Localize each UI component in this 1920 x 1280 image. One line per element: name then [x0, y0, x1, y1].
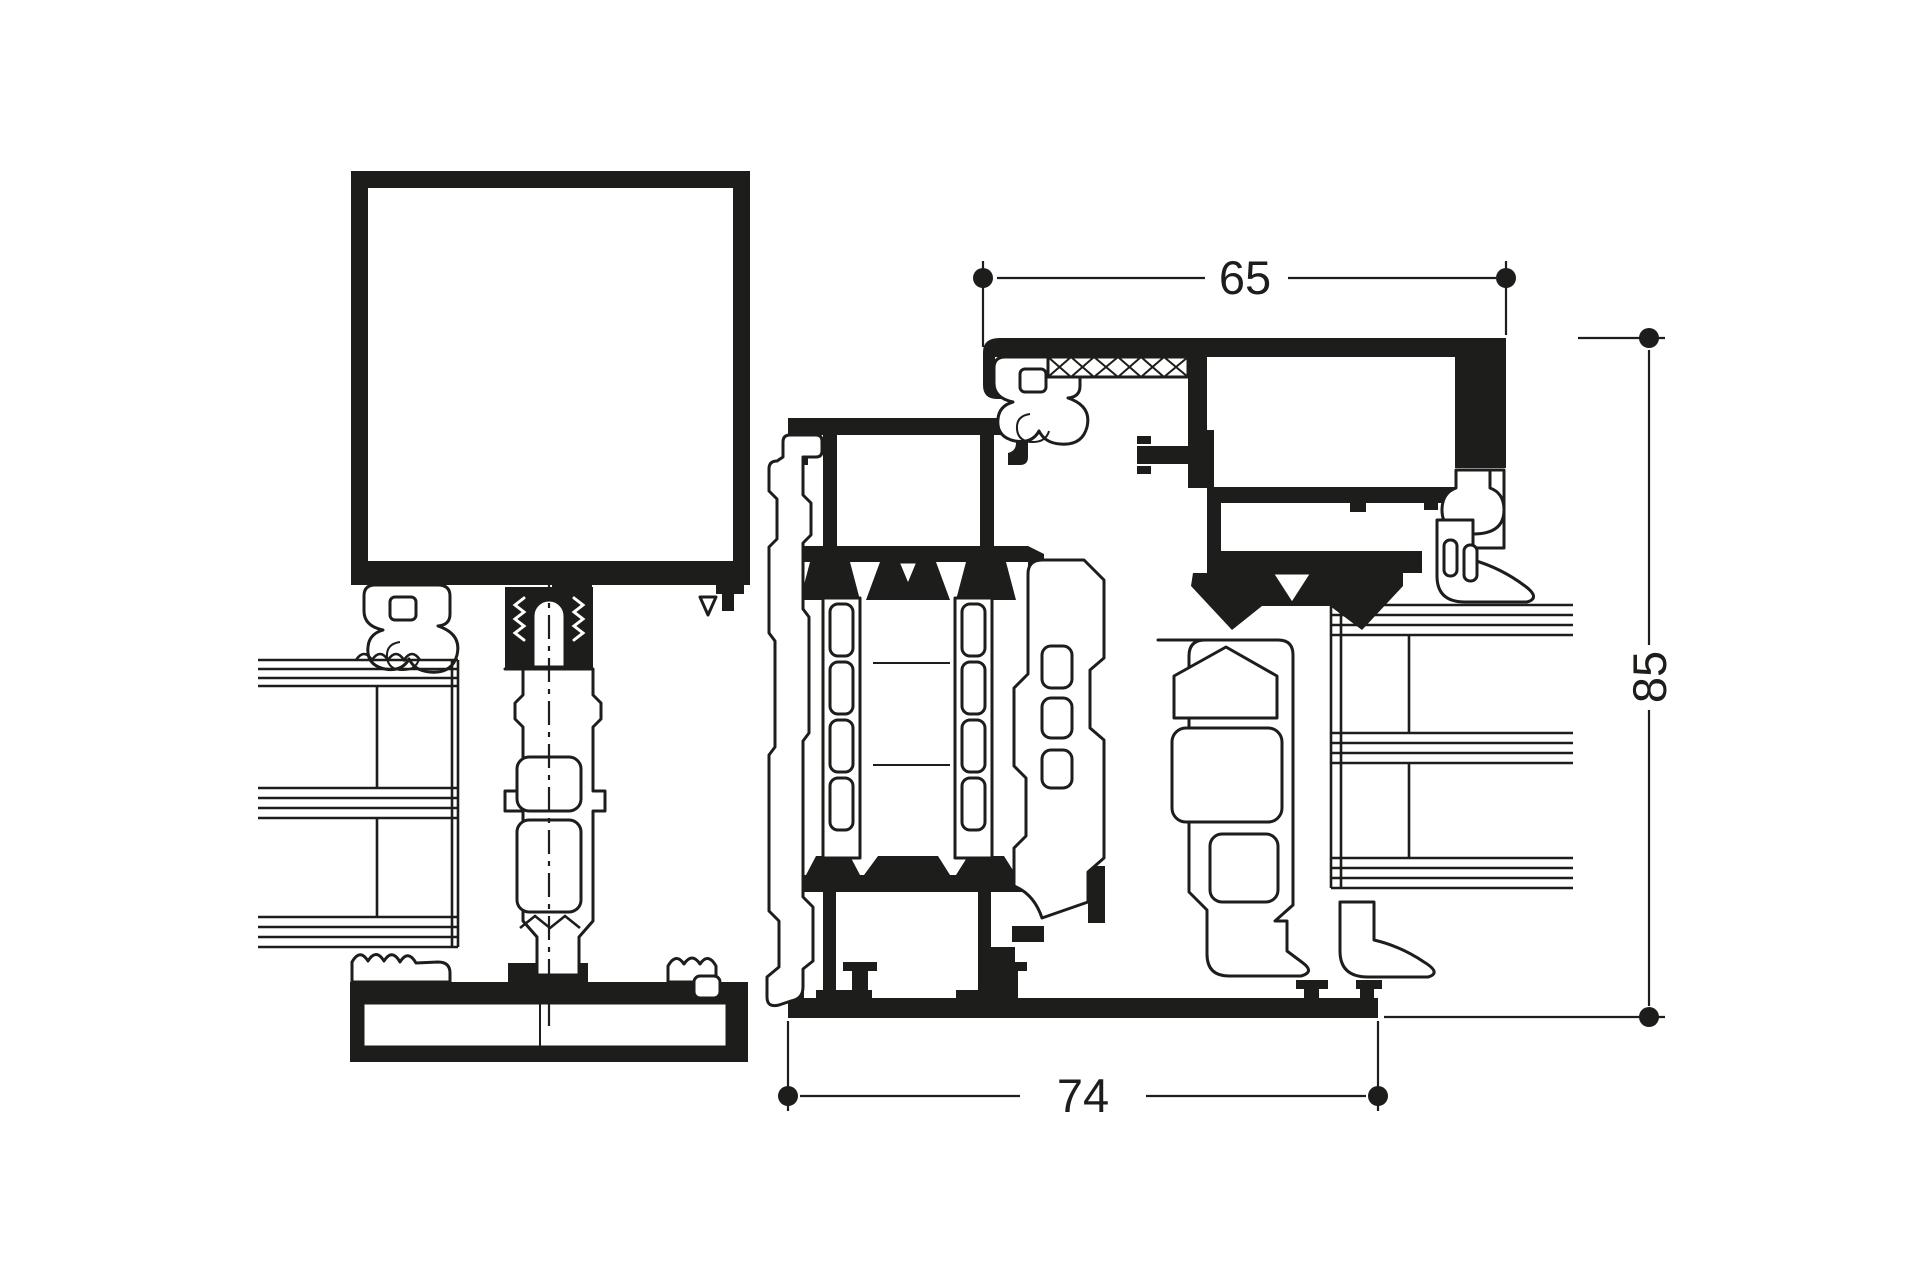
section-drawing: 65 85 74 [0, 0, 1920, 1280]
boot-gasket-bottom [1340, 902, 1434, 977]
dim-65-label: 65 [1219, 251, 1271, 304]
compressed-seal-crosshatch [1048, 357, 1188, 377]
glazing-unit-right [1331, 605, 1573, 888]
small-wedge-gasket [700, 597, 716, 615]
sill-body [363, 1003, 727, 1047]
addon-profile [767, 435, 822, 1006]
dim-74-label: 74 [1057, 1069, 1109, 1122]
frame-shelf [1220, 551, 1422, 573]
sash-glass-panel [351, 171, 750, 611]
frame-lower-profile [1014, 470, 1504, 976]
dimension-top-width: 65 [973, 251, 1516, 347]
dimension-bottom-width: 74 [778, 1021, 1388, 1122]
dim-85-label: 85 [1623, 651, 1676, 703]
glazing-unit-left [258, 654, 458, 947]
drawing-sheet: 65 85 74 [0, 0, 1920, 1280]
dimension-right-height: 85 [1384, 328, 1676, 1027]
frame-right-wall [1455, 338, 1506, 468]
thermal-struts [823, 598, 992, 858]
